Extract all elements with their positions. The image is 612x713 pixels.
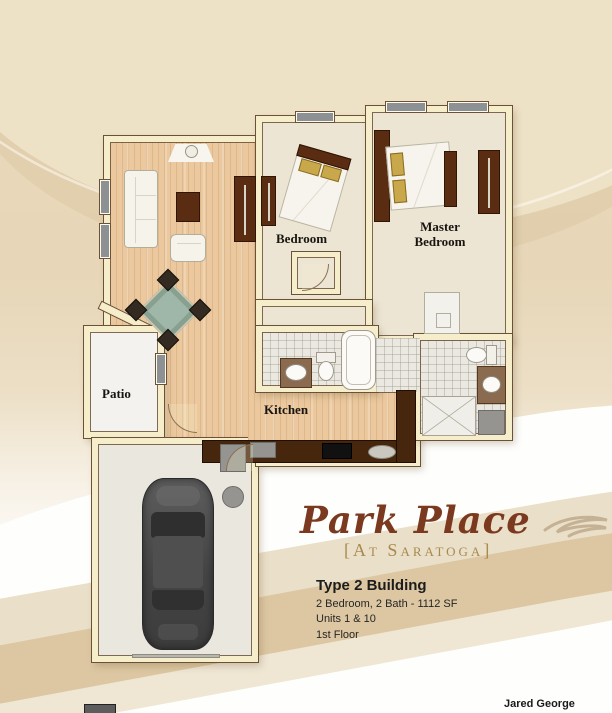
- master-window: [448, 102, 488, 112]
- building-type: Type 2 Building: [316, 577, 457, 594]
- patio-label: Patio: [102, 386, 131, 402]
- stove: [322, 443, 352, 459]
- shower: [422, 396, 476, 436]
- hall-toilet-bowl: [318, 361, 334, 381]
- refrigerator: [250, 442, 276, 458]
- building-specs: 2 Bedroom, 2 Bath - 1112 SF: [316, 597, 457, 612]
- designer-credit: Jared George: [504, 698, 575, 710]
- bedroom-label: Bedroom: [276, 231, 327, 247]
- building-floor: 1st Floor: [316, 628, 457, 643]
- patio-door: [156, 354, 166, 384]
- bedroom-window: [296, 112, 334, 122]
- armchair: [170, 234, 206, 262]
- hall-bath-sink: [285, 364, 307, 381]
- master-foot-bench: [444, 151, 457, 207]
- patio: [84, 326, 164, 438]
- logo-swoosh-icon: [543, 512, 609, 545]
- sofa: [124, 170, 158, 248]
- building-units: Units 1 & 10: [316, 612, 457, 627]
- bedroom-dresser: [261, 176, 276, 226]
- kitchen-label: Kitchen: [264, 402, 308, 418]
- fireplace-fan-icon: [185, 145, 198, 158]
- logo-subtitle: [At Saratoga]: [344, 540, 492, 561]
- car: [142, 478, 214, 650]
- kitchen-counter-right: [396, 390, 416, 463]
- logo-title: Park Place: [300, 498, 531, 542]
- fireplace: [168, 144, 214, 162]
- master-bedroom-label: Master Bedroom: [398, 220, 482, 249]
- corner-thumbnail: [84, 704, 116, 713]
- washer: [478, 410, 505, 435]
- master-toilet: [486, 345, 497, 365]
- building-info: Type 2 Building 2 Bedroom, 2 Bath - 1112…: [316, 577, 457, 643]
- master-window: [386, 102, 426, 112]
- garage-door: [132, 654, 220, 658]
- kitchen-sink: [368, 445, 396, 459]
- floorplan-marketing-sheet: Bedroom Master Bedroom Patio Kitchen Par…: [0, 0, 612, 713]
- master-bath-sink: [482, 376, 501, 393]
- bathtub: [341, 330, 376, 390]
- living-window: [100, 224, 110, 258]
- master-dresser: [478, 150, 500, 214]
- master-toilet-bowl: [466, 347, 487, 363]
- utility-tank: [222, 486, 244, 508]
- master-bath-entry: [376, 338, 420, 392]
- media-console: [234, 176, 256, 242]
- master-closet-shelf: [424, 292, 460, 334]
- living-window: [100, 180, 110, 214]
- coffee-table: [176, 192, 200, 222]
